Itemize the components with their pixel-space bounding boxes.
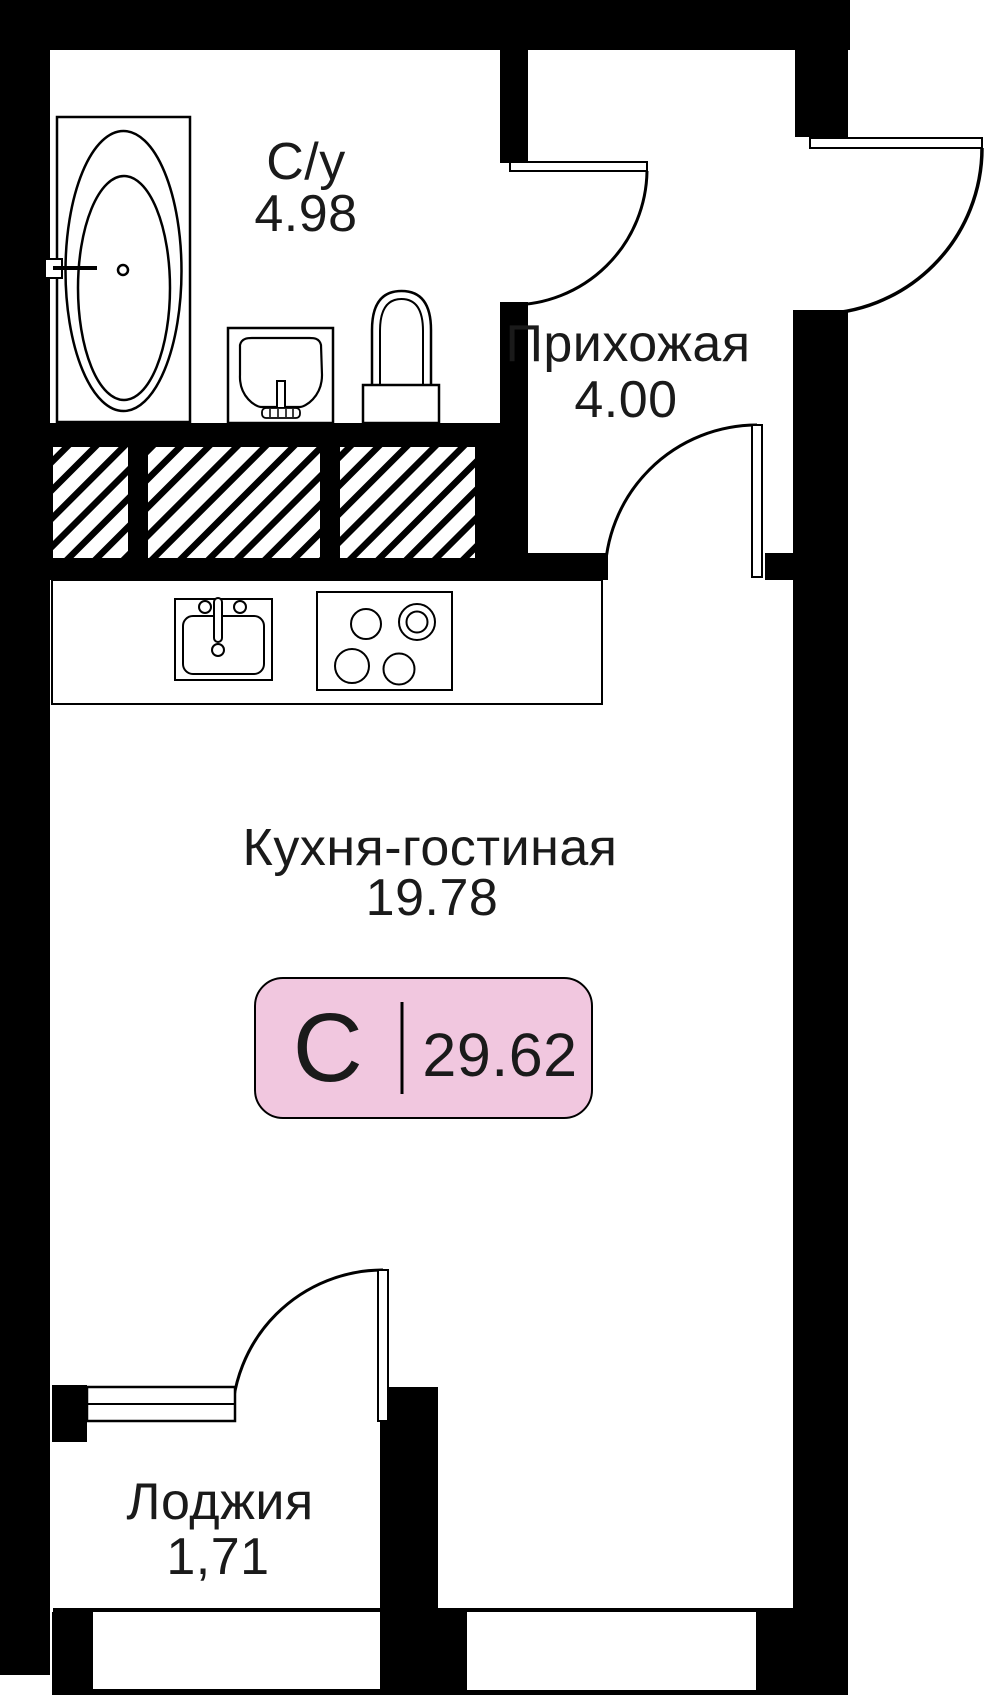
badge-total-area: 29.62 [422, 1021, 577, 1089]
door-swing-icon [605, 425, 757, 577]
washbasin-icon [228, 328, 333, 423]
loggia-area: 1,71 [166, 1528, 269, 1586]
wall-hall-bottom-left [526, 553, 608, 580]
wall-bottom-left-stub [52, 1612, 93, 1695]
vent-shafts [53, 447, 475, 558]
floor-plan-canvas: С/у 4.98 Прихожая 4.00 Кухня-гостиная 19… [0, 0, 1000, 1695]
door-swing-icon [816, 148, 982, 314]
wall-loggia-right-bottom-ext [380, 1608, 467, 1695]
hallway-area: 4.00 [574, 371, 677, 429]
washbasin-grille [262, 408, 300, 418]
bathroom-area: 4.98 [254, 185, 357, 243]
kitchen-sink-faucet [214, 598, 222, 642]
vent-shaft-hatch-icon [340, 447, 475, 558]
vent-shaft-hatch-icon [148, 447, 320, 558]
washbasin-faucet [277, 381, 285, 408]
bathtub-icon [45, 117, 190, 422]
wall-loggia-left-stub [52, 1385, 87, 1442]
kitchen-sink-outline [175, 599, 272, 680]
door-swing-icon [511, 171, 647, 305]
wall-left [0, 0, 50, 1675]
wall-hall-right-upper [795, 50, 848, 137]
vent-shaft-hatch-icon [53, 447, 128, 558]
room-labels: С/у 4.98 Прихожая 4.00 Кухня-гостиная 19… [126, 133, 750, 1586]
wall-bottom-strip-left [93, 1689, 380, 1695]
badge-type-letter: С [293, 993, 364, 1102]
door-leaf-loggia [378, 1270, 388, 1421]
apartment-badge: С 29.62 [255, 978, 592, 1118]
wall-bottom-strip-right [467, 1690, 756, 1695]
toilet-icon [363, 291, 439, 423]
kitchen-living-area: 19.78 [366, 869, 499, 927]
wall-right-bottom-ext [756, 1612, 796, 1695]
loggia-label: Лоджия [126, 1473, 313, 1531]
door-leaf-kitchen [752, 425, 762, 577]
stove-icon [317, 592, 452, 690]
wall-bathroom-right-upper [500, 50, 528, 163]
kitchen-sink-icon [175, 598, 272, 680]
wall-right-main [793, 310, 848, 1695]
door-leaf-bathroom [510, 162, 647, 171]
wall-top [0, 0, 850, 50]
toilet-tank [363, 385, 439, 423]
floor-plan: С/у 4.98 Прихожая 4.00 Кухня-гостиная 19… [0, 0, 1000, 1695]
loggia-window [87, 1387, 235, 1421]
door-swing-icon [232, 1270, 383, 1421]
wall-hall-bottom-stub [765, 553, 795, 580]
hallway-label: Прихожая [506, 315, 751, 373]
bathroom-label: С/у [266, 133, 346, 191]
door-leaf-entrance [810, 138, 982, 148]
wall-loggia-bottom-line [53, 1608, 793, 1612]
